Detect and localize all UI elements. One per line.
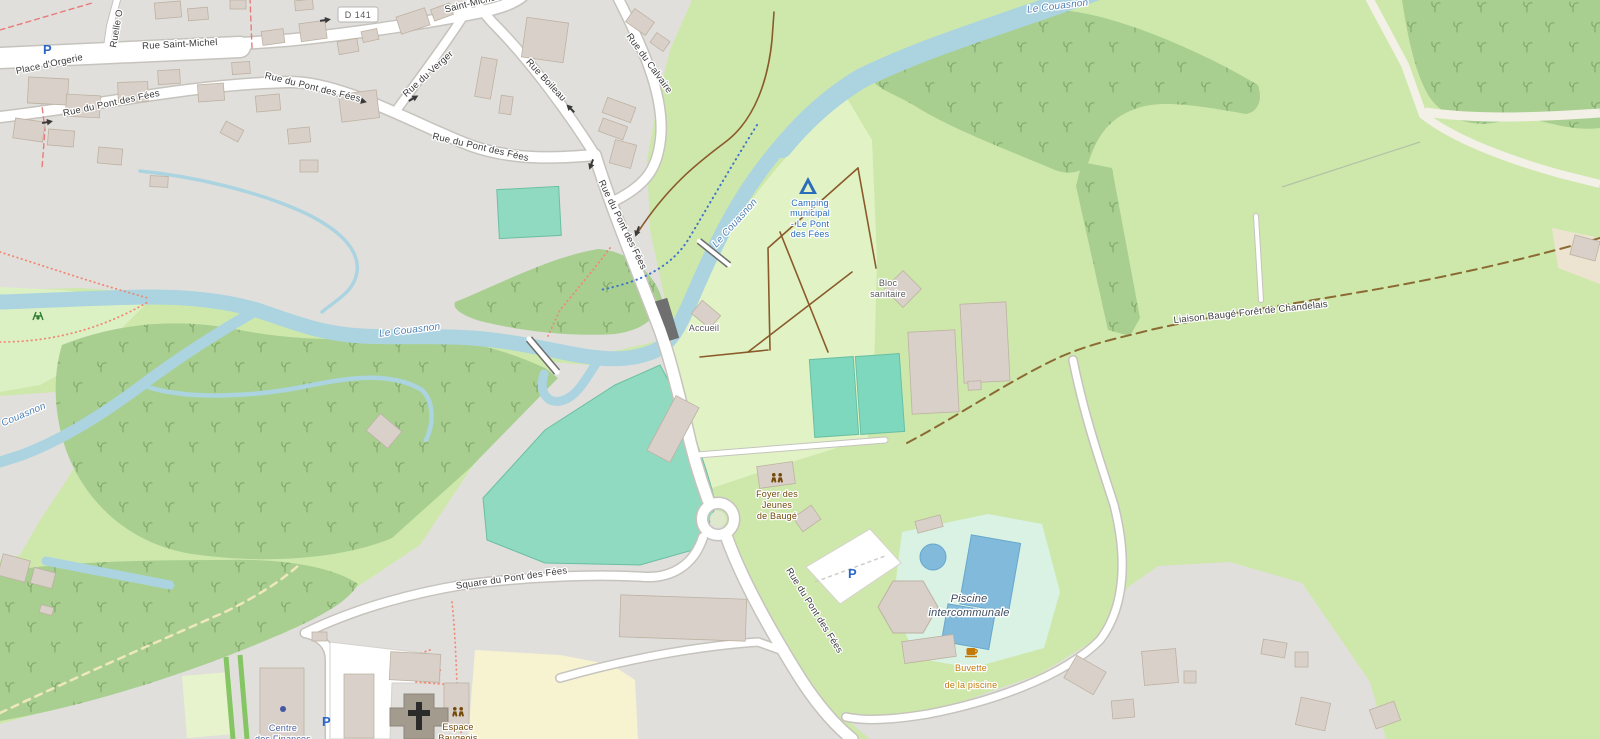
parking-icon: P: [848, 566, 857, 581]
building: [521, 17, 568, 62]
building: [295, 0, 314, 11]
svg-text:- Le Pont: - Le Pont: [791, 219, 830, 229]
parking-icon: P: [43, 42, 52, 57]
road-ref-badge: D 141: [338, 7, 378, 22]
svg-text:des Finances: des Finances: [255, 734, 311, 739]
svg-text:Espace: Espace: [442, 722, 473, 732]
building: [299, 20, 327, 41]
svg-text:D 141: D 141: [345, 10, 372, 20]
building: [47, 129, 74, 147]
building: [232, 61, 251, 74]
building: [27, 77, 68, 105]
building: [300, 160, 318, 172]
svg-text:intercommunale: intercommunale: [928, 607, 1009, 619]
building: [1184, 671, 1196, 683]
svg-text:sanitaire: sanitaire: [870, 289, 906, 299]
map-canvas[interactable]: P P P D 141 Rue Saint-Michel Saint-Miche…: [0, 0, 1600, 739]
svg-text:Buvette: Buvette: [955, 663, 987, 673]
svg-text:Camping: Camping: [791, 198, 828, 208]
svg-text:Jeunes: Jeunes: [762, 500, 793, 510]
building: [960, 302, 1010, 383]
svg-text:de Baugé: de Baugé: [757, 511, 797, 521]
building: [499, 95, 513, 114]
map-svg: P P P D 141 Rue Saint-Michel Saint-Miche…: [0, 0, 1600, 739]
building: [261, 29, 285, 46]
poi-foyer-label: Foyer des Jeunes de Baugé: [756, 489, 798, 521]
building: [1295, 697, 1330, 731]
poi-camping-label: Camping municipal - Le Pont des Fées: [790, 198, 830, 239]
svg-text:de la piscine: de la piscine: [945, 680, 998, 690]
building: [908, 330, 959, 414]
building: [188, 7, 209, 21]
svg-text:des Fées: des Fées: [791, 229, 830, 239]
svg-text:Centre: Centre: [269, 723, 297, 733]
parking-icon: P: [322, 714, 331, 729]
svg-text:Bloc: Bloc: [879, 278, 898, 288]
svg-text:Baugeois: Baugeois: [438, 733, 477, 739]
building: [312, 632, 327, 641]
svg-text:municipal: municipal: [790, 208, 830, 218]
building: [154, 1, 181, 19]
poi-espace-label: Espace Baugeois: [438, 722, 477, 739]
building: [97, 147, 122, 165]
building: [197, 83, 224, 102]
building: [1295, 652, 1308, 667]
building: [968, 381, 981, 391]
svg-text:Piscine: Piscine: [951, 593, 988, 605]
building: [1142, 649, 1179, 686]
building: [344, 674, 374, 738]
building: [287, 127, 310, 144]
building: [255, 94, 280, 112]
building: [13, 118, 45, 142]
office-poi-dot: [280, 706, 286, 712]
building: [389, 652, 440, 683]
building: [757, 462, 796, 489]
roundabout-island: [710, 511, 726, 527]
building: [619, 595, 746, 641]
building: [1111, 699, 1134, 719]
building: [230, 0, 246, 9]
poi-accueil-label: Accueil: [689, 323, 719, 333]
building: [158, 69, 181, 84]
building: [150, 176, 169, 188]
svg-text:Foyer des: Foyer des: [756, 489, 798, 499]
